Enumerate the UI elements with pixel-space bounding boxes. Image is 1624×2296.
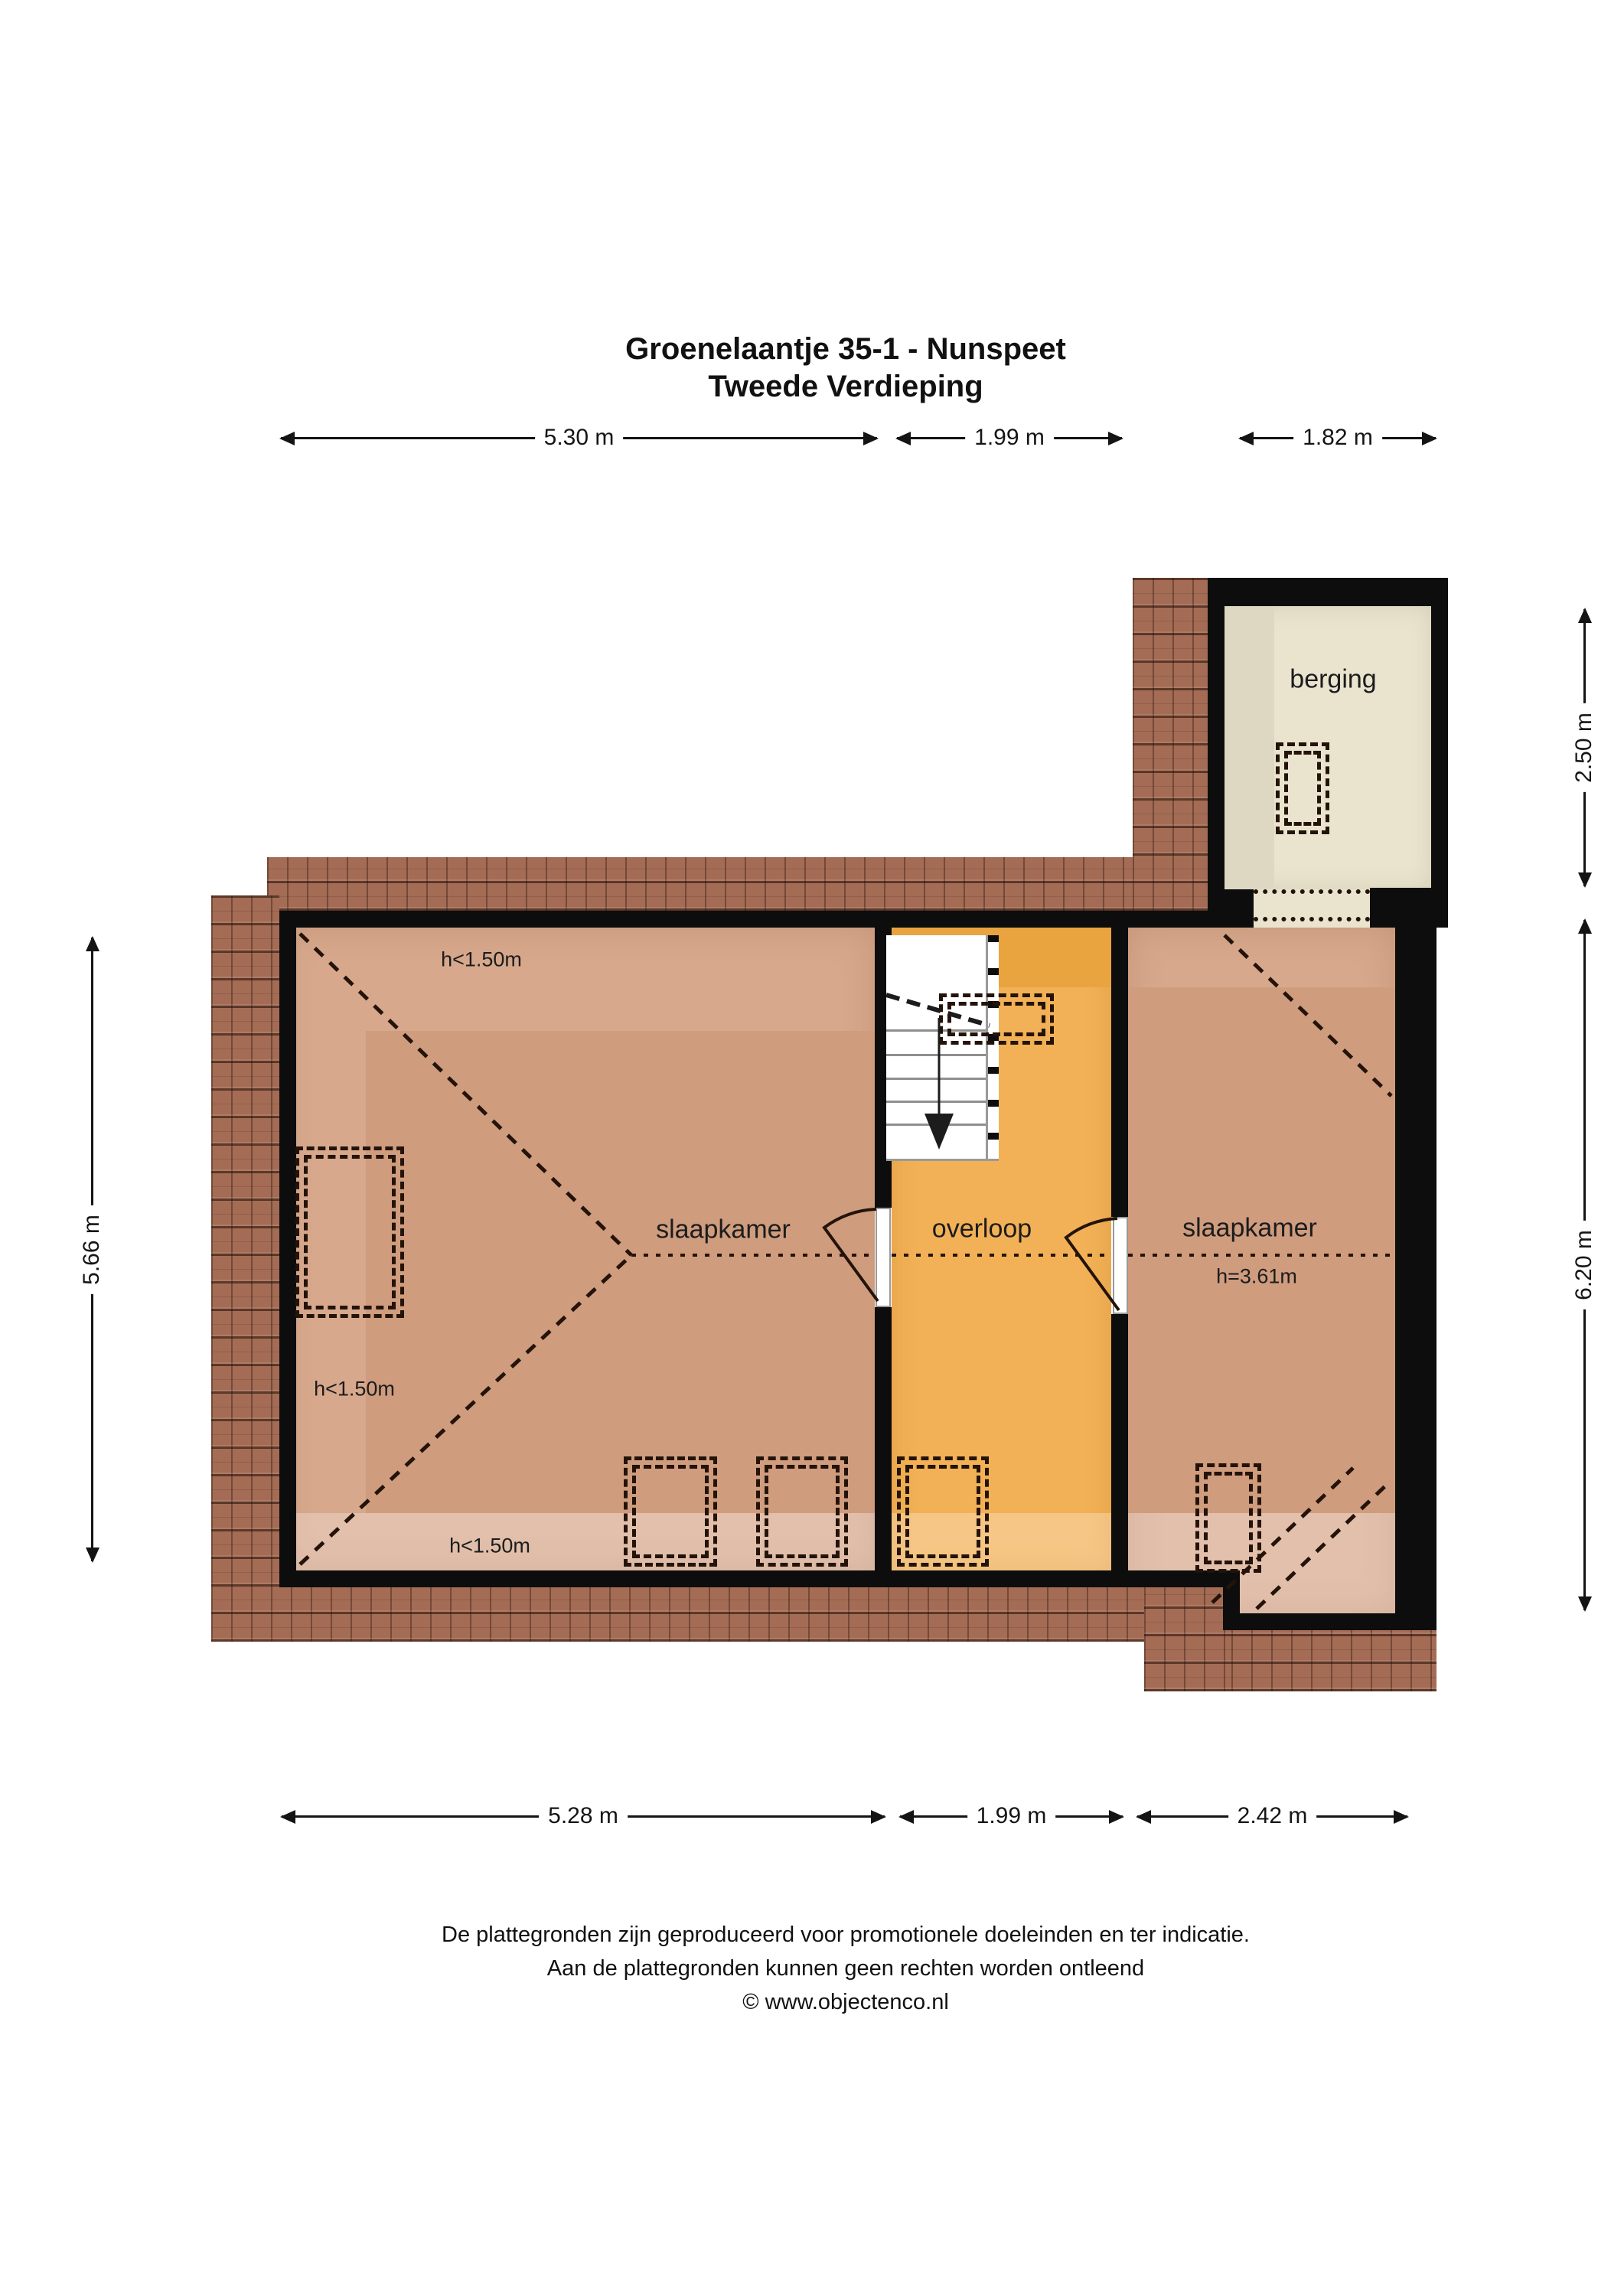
wall-storage-bottom-right [1370, 888, 1448, 928]
skylight-storage [1276, 742, 1329, 834]
disclaimer-line3: © www.objectenco.nl [442, 1985, 1250, 2019]
bedroom-right-label: slaapkamer [1182, 1214, 1317, 1244]
storage-passage [1254, 889, 1370, 928]
storage-passage-threshold [1254, 917, 1370, 921]
skylight-bedroom-left-west [295, 1146, 404, 1318]
floorplan-sheet: Groenelaantje 35-1 - Nunspeet Tweede Ver… [0, 0, 1624, 2296]
skylight-stairwell [939, 993, 1054, 1045]
stair-tread [886, 1124, 989, 1126]
skylight-bedroom-left-south1 [624, 1456, 717, 1567]
wall-storage-left [1208, 578, 1225, 922]
arrowhead-right [1108, 432, 1123, 445]
roof-band-left [211, 895, 279, 1642]
dim-top-2: 1.99 m [895, 426, 1123, 450]
arrowhead-right [863, 432, 879, 445]
stair-railing [986, 935, 999, 1159]
skylight-bedroom-left-south2 [756, 1456, 848, 1567]
dim-top-1-label: 5.30 m [535, 425, 624, 451]
dim-bottom-1-label: 5.28 m [539, 1803, 628, 1829]
arrowhead-down [86, 1548, 99, 1563]
wall-main-right [1395, 888, 1436, 1630]
door-jamb-bedroom-right [1113, 1217, 1128, 1314]
low-headroom-overlay-extension [1240, 1570, 1395, 1613]
title-floor: Tweede Verdieping [625, 368, 1066, 406]
dim-right-2: 6.20 m [1573, 918, 1596, 1612]
roof-band-bottom-left [211, 1587, 1144, 1642]
roof-band-storage-side [1133, 578, 1208, 911]
page-title: Groenelaantje 35-1 - Nunspeet Tweede Ver… [625, 331, 1066, 406]
wall-main-top [279, 911, 1254, 928]
door-jamb-bedroom-left [876, 1208, 891, 1307]
dim-left-1: 5.66 m [80, 936, 104, 1563]
bedroom-right-floor-inner [1128, 987, 1395, 1513]
skylight-landing-south [897, 1456, 989, 1567]
roof-band-bottom-right [1231, 1630, 1436, 1691]
dim-bottom-2-label: 1.99 m [967, 1803, 1056, 1829]
ridge-height-label: h=3.61m [1216, 1265, 1297, 1289]
wall-storage-bottom-left [1208, 889, 1254, 928]
wall-main-left [279, 911, 296, 1587]
dim-top-3: 1.82 m [1238, 426, 1437, 450]
dim-top-1: 5.30 m [279, 426, 879, 450]
dim-top-3-label: 1.82 m [1293, 425, 1382, 451]
arrowhead-right [1109, 1810, 1124, 1824]
dim-right-2-label: 6.20 m [1571, 1221, 1597, 1309]
storage-label: berging [1290, 665, 1376, 695]
wall-main-bottom-left [279, 1570, 1240, 1587]
dim-right-1-label: 2.50 m [1571, 703, 1597, 792]
headroom-label-top: h<1.50m [441, 948, 522, 972]
headroom-label-bottom: h<1.50m [449, 1534, 530, 1558]
bedroom-left-floor-inner [366, 1031, 875, 1513]
dim-left-1-label: 5.66 m [79, 1205, 105, 1294]
wall-divider1-lower [875, 1307, 892, 1570]
arrowhead-down [1578, 1596, 1592, 1612]
stair-tread [886, 1054, 989, 1056]
disclaimer-line2: Aan de plattegronden kunnen geen rechten… [442, 1952, 1250, 1985]
arrowhead-right [1422, 432, 1437, 445]
dim-right-1: 2.50 m [1573, 608, 1596, 888]
stair-tread [886, 1078, 989, 1080]
bedroom-left-label: slaapkamer [656, 1215, 791, 1245]
staircase [886, 935, 999, 1161]
wall-divider2-upper [1111, 928, 1128, 1217]
arrowhead-down [1578, 872, 1592, 888]
dim-bottom-3-label: 2.42 m [1228, 1803, 1317, 1829]
headroom-label-left: h<1.50m [314, 1378, 395, 1401]
dim-top-2-label: 1.99 m [965, 425, 1054, 451]
title-address: Groenelaantje 35-1 - Nunspeet [625, 331, 1066, 368]
dim-bottom-2: 1.99 m [898, 1805, 1124, 1828]
wall-divider2-lower [1111, 1314, 1128, 1570]
storage-floor-strip [1225, 606, 1274, 889]
wall-storage-right [1431, 578, 1448, 922]
arrowhead-right [1394, 1810, 1409, 1824]
disclaimer: De plattegronden zijn geproduceerd voor … [442, 1918, 1250, 2019]
roof-band-top [267, 857, 1208, 911]
stair-tread [886, 1101, 989, 1103]
disclaimer-line1: De plattegronden zijn geproduceerd voor … [442, 1918, 1250, 1952]
arrowhead-right [871, 1810, 886, 1824]
skylight-bedroom-right-south [1195, 1463, 1261, 1573]
dim-bottom-3: 2.42 m [1136, 1805, 1409, 1828]
wall-storage-top [1208, 578, 1448, 606]
landing-label: overloop [932, 1215, 1032, 1244]
dim-bottom-1: 5.28 m [280, 1805, 886, 1828]
